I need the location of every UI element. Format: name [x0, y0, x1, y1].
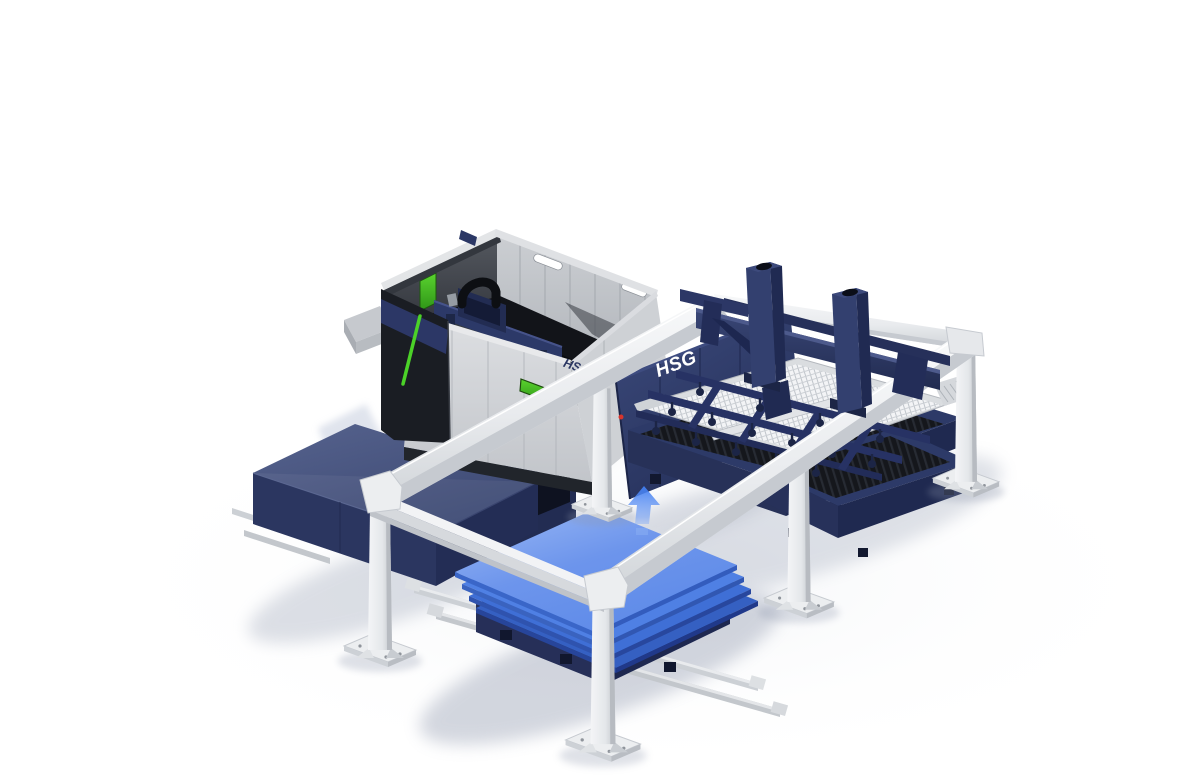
scene-svg: HSG HSG [0, 0, 1200, 780]
status-indicator-light [619, 415, 624, 420]
product-render: HSG HSG [0, 0, 1200, 780]
